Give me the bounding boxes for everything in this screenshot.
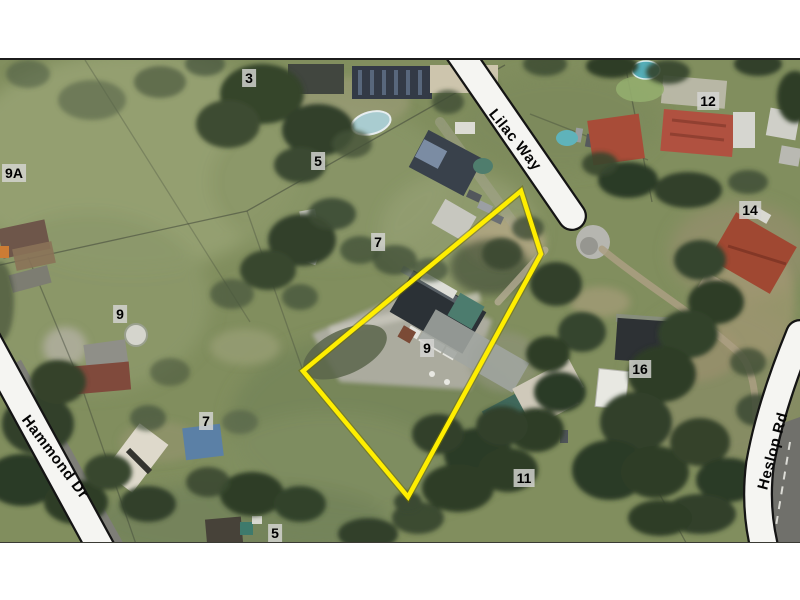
- lot-label-9a: 9A: [2, 164, 26, 182]
- lot-label-11: 11: [514, 469, 535, 487]
- lot-label-9-west: 9: [113, 305, 127, 323]
- lot-label-16: 16: [629, 360, 651, 378]
- lot-label-5-top: 5: [311, 152, 325, 170]
- lot-label-14: 14: [739, 201, 761, 219]
- aerial-photo: Lilac Way Hammond Dr Heslop Rd 3 5 7 9A …: [0, 58, 800, 543]
- lot-label-7-mid: 7: [371, 233, 385, 251]
- lot-label-3: 3: [242, 69, 256, 87]
- lot-label-7-west: 7: [199, 412, 213, 430]
- lot-label-5-south: 5: [268, 524, 282, 542]
- lot-label-9-subject: 9: [420, 339, 434, 357]
- property-map-page: Lilac Way Hammond Dr Heslop Rd 3 5 7 9A …: [0, 0, 800, 600]
- lot-label-12: 12: [697, 92, 719, 110]
- aerial-scene: [0, 60, 800, 542]
